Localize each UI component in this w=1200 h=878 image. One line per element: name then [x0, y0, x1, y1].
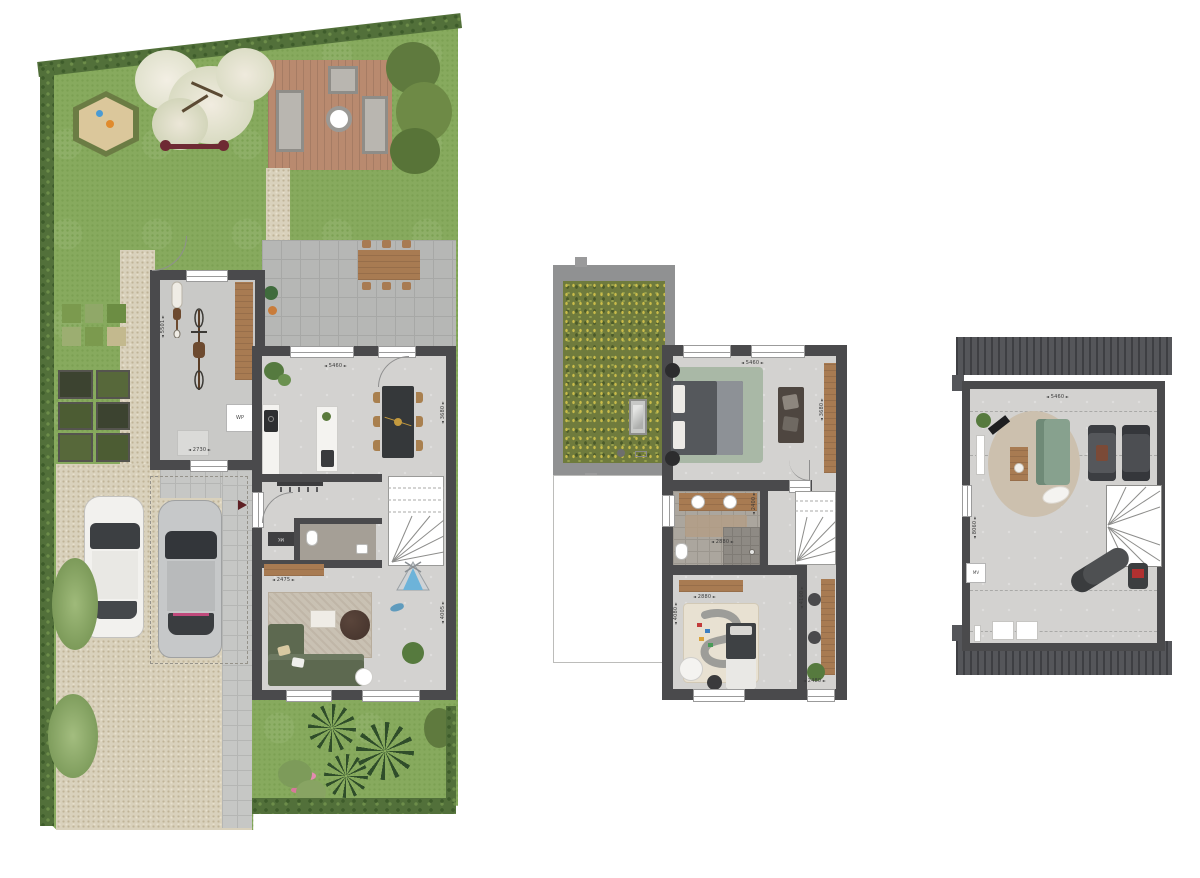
raised-bed [96, 402, 131, 431]
planter [107, 327, 126, 346]
pillow [730, 626, 752, 635]
raised-bed [58, 433, 93, 462]
raised-bed [96, 433, 131, 462]
hedge-back [252, 798, 456, 814]
shrub [52, 558, 98, 650]
living-plant [402, 642, 424, 664]
seesaw-toy [218, 140, 229, 151]
car-roof [92, 551, 138, 599]
garden-path [266, 168, 290, 244]
roof-terrace-door [662, 495, 675, 527]
kids-shelf [679, 580, 743, 592]
planter [62, 327, 81, 346]
fruit-bowl [322, 412, 331, 421]
shower [723, 527, 760, 565]
cargo-bike [166, 280, 188, 338]
headroom-line [970, 590, 1157, 591]
dimension-attic-width: 5460 [1046, 395, 1069, 400]
double-bed [671, 381, 743, 455]
storage-box [992, 621, 1014, 640]
meter-closet: MK [268, 532, 294, 546]
planter [85, 327, 104, 346]
palm-plant [308, 704, 356, 752]
lounge-chaise [276, 90, 304, 152]
gym-machine [1088, 425, 1116, 481]
attic-plan: 5460 8060 MV [950, 333, 1180, 678]
garage-cabinet [235, 282, 253, 380]
car-rear-window [168, 613, 214, 635]
outdoor-chair [402, 282, 411, 290]
coffee-table [1010, 447, 1028, 481]
terrace-flower-pot [268, 306, 277, 315]
wc-toilet [675, 543, 688, 560]
car-rear-window [93, 601, 137, 619]
desk-chair [808, 631, 821, 644]
mech-vent-unit: MV [966, 563, 986, 583]
outdoor-dining-table [358, 250, 420, 280]
roof-vent-stub [575, 257, 587, 267]
dimension-attic-depth: 8060 [973, 516, 978, 539]
attic-side-window [962, 485, 972, 517]
pillow [673, 385, 685, 413]
dimension-hall-width: 2475 [272, 578, 295, 583]
bedroom-bench [778, 387, 804, 443]
dimension-living-depth: 4005 [441, 601, 446, 624]
seesaw-toy [166, 144, 222, 149]
play-teepee [396, 560, 430, 594]
seesaw-toy [160, 140, 171, 151]
heat-pump-unit: WP [226, 404, 254, 432]
side-table [355, 668, 373, 686]
lower-roof-outline [553, 475, 671, 663]
planter [62, 304, 81, 323]
skylight-glass [633, 405, 643, 429]
desk [821, 579, 835, 675]
shrub [48, 694, 98, 778]
entrance-arrow-icon [238, 500, 247, 510]
dimension-bathroom-width: 2880 [711, 540, 734, 545]
pillow [673, 421, 685, 449]
dimension-garage-width: 2730 [188, 448, 211, 453]
palm-plant [324, 754, 368, 798]
bedside-table [665, 363, 680, 378]
kitchen-window [290, 346, 354, 358]
kids-table [679, 657, 703, 681]
kids-bed [726, 623, 756, 689]
lounge-sofa [362, 96, 388, 154]
raised-bed [96, 370, 131, 399]
lounge-table [326, 106, 352, 132]
hall-wall [262, 474, 382, 482]
bicycle [190, 306, 208, 394]
coat-hooks [280, 487, 318, 492]
skylight [629, 399, 647, 435]
mid-wall [662, 565, 807, 575]
dining-chair [373, 440, 380, 451]
dimension-kids-depth: 4080 [674, 602, 679, 625]
clothes [782, 394, 799, 410]
roof-vent [617, 449, 625, 457]
planter [85, 304, 104, 323]
planter [107, 304, 126, 323]
car-roof [167, 561, 215, 611]
garage-front-door [190, 460, 228, 472]
vacuum-cleaner [1128, 563, 1148, 589]
island-sink [321, 450, 334, 467]
heat-pump-label: WP [236, 416, 244, 421]
raised-beds [58, 370, 130, 462]
roof-grille [635, 451, 647, 457]
dimension-study-width: 2480 [803, 679, 826, 684]
pouf [340, 610, 370, 640]
tv-console [976, 435, 985, 475]
outdoor-chair [382, 240, 391, 248]
outdoor-chair [402, 240, 411, 248]
storage-item [974, 625, 981, 642]
silver-car [158, 500, 222, 658]
shower-drain [749, 549, 755, 555]
dining-chair [373, 392, 380, 403]
study-window [807, 689, 835, 702]
cat [1014, 463, 1024, 473]
tv-sideboard [264, 564, 324, 576]
gym-seat [1096, 445, 1108, 461]
mech-vent-label: MV [973, 571, 979, 575]
sand-toy [96, 110, 103, 117]
dimension-garage-depth: 5501 [161, 315, 166, 338]
bedside-table [665, 451, 680, 466]
dining-chair [416, 416, 423, 427]
vacuum-body [1132, 569, 1144, 578]
raised-bed [58, 370, 93, 399]
meter-closet-label: MK [278, 537, 284, 541]
bedroom-window [751, 345, 805, 358]
first-floor-plan: 5460 3680 2400 2880 2880 4080 [545, 255, 860, 705]
dimension-kids-width: 2880 [693, 595, 716, 600]
ground-floor-plan: WP 5501 2730 5460 3680 MK [40, 18, 458, 830]
staircase [388, 476, 444, 566]
dimension-bedroom-width: 5460 [741, 361, 764, 366]
car-windshield [165, 531, 217, 559]
attic-sofa [1036, 419, 1070, 485]
planter-grid [62, 304, 126, 346]
green-roof [563, 281, 665, 463]
dimension-dining-depth: 3680 [441, 401, 446, 424]
bedroom-window [683, 345, 731, 358]
headroom-line [970, 411, 1157, 412]
bathroom-wall [760, 491, 768, 565]
terrace-door [378, 346, 416, 358]
car-windshield [90, 523, 140, 549]
floor-plan-sheet: { "ground_floor": { "labels": { "heat_pu… [0, 0, 1200, 878]
sofa [268, 654, 364, 686]
shrub-cluster [390, 128, 440, 174]
outdoor-chair [382, 282, 391, 290]
hand-basin [356, 544, 368, 554]
lounge-armchair [328, 66, 358, 94]
kids-pouf [707, 675, 722, 690]
hedge-back-side [446, 706, 456, 802]
wc-toilet [306, 530, 318, 546]
outdoor-chair [362, 282, 371, 290]
staircase [795, 491, 836, 565]
raised-bed [58, 402, 93, 431]
burner [268, 416, 274, 422]
wash-basin [723, 495, 737, 509]
clothes [782, 416, 799, 432]
desk-chair [808, 593, 821, 606]
terrace-plant-pot [264, 286, 278, 300]
gym-machine [1122, 425, 1150, 481]
dimension-bedroom-depth: 3680 [820, 398, 825, 421]
blossom-tree [216, 48, 274, 102]
dining-chair [416, 440, 423, 451]
kitchen-plant [278, 374, 291, 386]
wardrobe [824, 363, 836, 473]
kids-window [693, 689, 745, 702]
sand-toy [106, 120, 114, 128]
coat-rack [277, 482, 323, 486]
sofa-pillow [291, 657, 304, 668]
outdoor-chair [362, 240, 371, 248]
storage-box [1016, 621, 1038, 640]
dimension-bathroom-depth: 2400 [752, 492, 757, 515]
wash-basin [691, 495, 705, 509]
car-taillight [173, 613, 209, 616]
roof-plane-front [956, 337, 1172, 375]
garage-back-door [186, 270, 228, 282]
dining-chair [373, 416, 380, 427]
attic-plant [976, 413, 991, 428]
dimension-living-width: 5460 [324, 364, 347, 369]
living-window [286, 690, 332, 702]
living-window [362, 690, 420, 702]
dimension-study-depth: 4100 [800, 586, 805, 609]
dining-chair [416, 392, 423, 403]
play-mat [310, 610, 336, 628]
